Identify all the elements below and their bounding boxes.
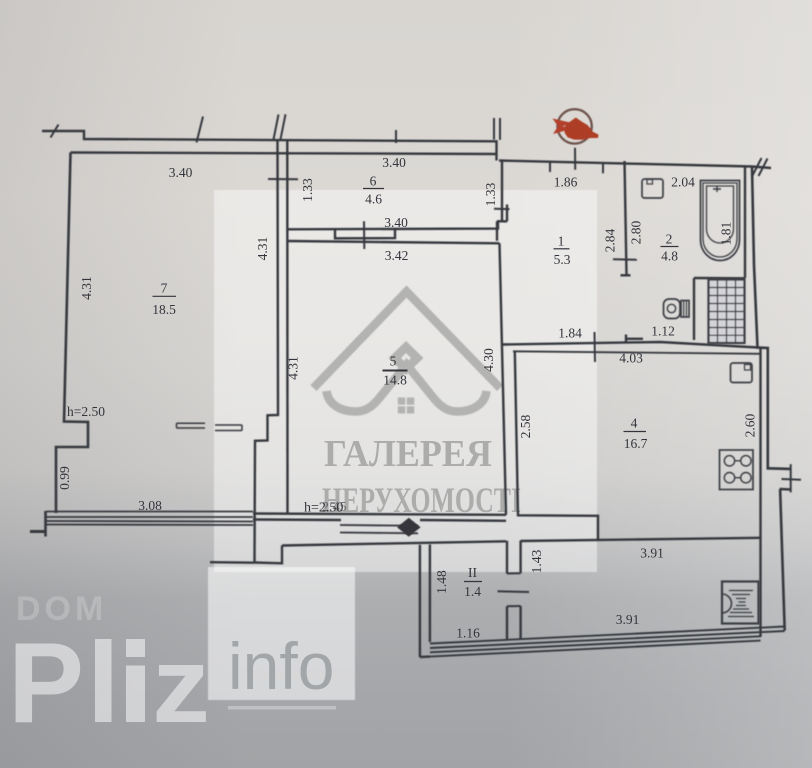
svg-text:1.48: 1.48 xyxy=(434,570,449,594)
svg-text:4.31: 4.31 xyxy=(79,276,94,300)
svg-text:2.45: 2.45 xyxy=(322,500,347,515)
svg-text:4.8: 4.8 xyxy=(661,249,678,264)
svg-text:6: 6 xyxy=(370,174,377,189)
svg-text:h=2.50: h=2.50 xyxy=(67,404,105,419)
svg-text:14.8: 14.8 xyxy=(383,373,407,388)
svg-text:1.33: 1.33 xyxy=(300,178,315,202)
svg-text:ГАЛЕРЕЯ: ГАЛЕРЕЯ xyxy=(324,433,492,475)
svg-text:3.91: 3.91 xyxy=(640,546,664,561)
svg-text:4.31: 4.31 xyxy=(255,237,270,261)
svg-text:1.16: 1.16 xyxy=(456,626,480,641)
svg-text:2.60: 2.60 xyxy=(743,413,758,437)
svg-text:3.42: 3.42 xyxy=(385,248,409,263)
svg-text:2.84: 2.84 xyxy=(603,228,618,252)
svg-text:0.99: 0.99 xyxy=(57,466,72,490)
svg-text:1.4: 1.4 xyxy=(464,584,481,599)
svg-text:4.03: 4.03 xyxy=(619,351,643,366)
svg-text:7: 7 xyxy=(161,281,168,296)
svg-text:1.33: 1.33 xyxy=(483,182,498,206)
svg-text:1.12: 1.12 xyxy=(651,324,675,339)
svg-text:4: 4 xyxy=(631,416,638,431)
svg-text:4.6: 4.6 xyxy=(365,192,382,207)
svg-text:3.40: 3.40 xyxy=(382,155,406,170)
svg-text:4.31: 4.31 xyxy=(286,356,301,380)
svg-text:P: P xyxy=(8,620,84,747)
svg-text:5: 5 xyxy=(390,354,397,369)
svg-text:2.58: 2.58 xyxy=(518,414,533,438)
svg-text:1.81: 1.81 xyxy=(719,222,734,246)
svg-text:3.91: 3.91 xyxy=(616,612,640,627)
svg-text:1.84: 1.84 xyxy=(558,326,582,341)
svg-text:18.5: 18.5 xyxy=(152,302,176,317)
svg-text:1: 1 xyxy=(558,234,565,249)
svg-text:3.40: 3.40 xyxy=(169,165,193,180)
svg-text:1.43: 1.43 xyxy=(529,549,544,573)
svg-text:info: info xyxy=(228,629,334,703)
svg-text:4.30: 4.30 xyxy=(481,348,496,372)
svg-text:1.86: 1.86 xyxy=(554,175,578,190)
svg-text:2.80: 2.80 xyxy=(629,220,644,244)
svg-text:2: 2 xyxy=(666,232,673,247)
svg-text:II: II xyxy=(468,565,477,580)
svg-text:16.7: 16.7 xyxy=(624,436,648,451)
svg-text:5.3: 5.3 xyxy=(554,252,571,267)
svg-text:z: z xyxy=(152,624,210,745)
svg-text:3.08: 3.08 xyxy=(138,498,162,513)
svg-text:2.04: 2.04 xyxy=(671,175,695,190)
svg-text:3.40: 3.40 xyxy=(384,215,408,230)
